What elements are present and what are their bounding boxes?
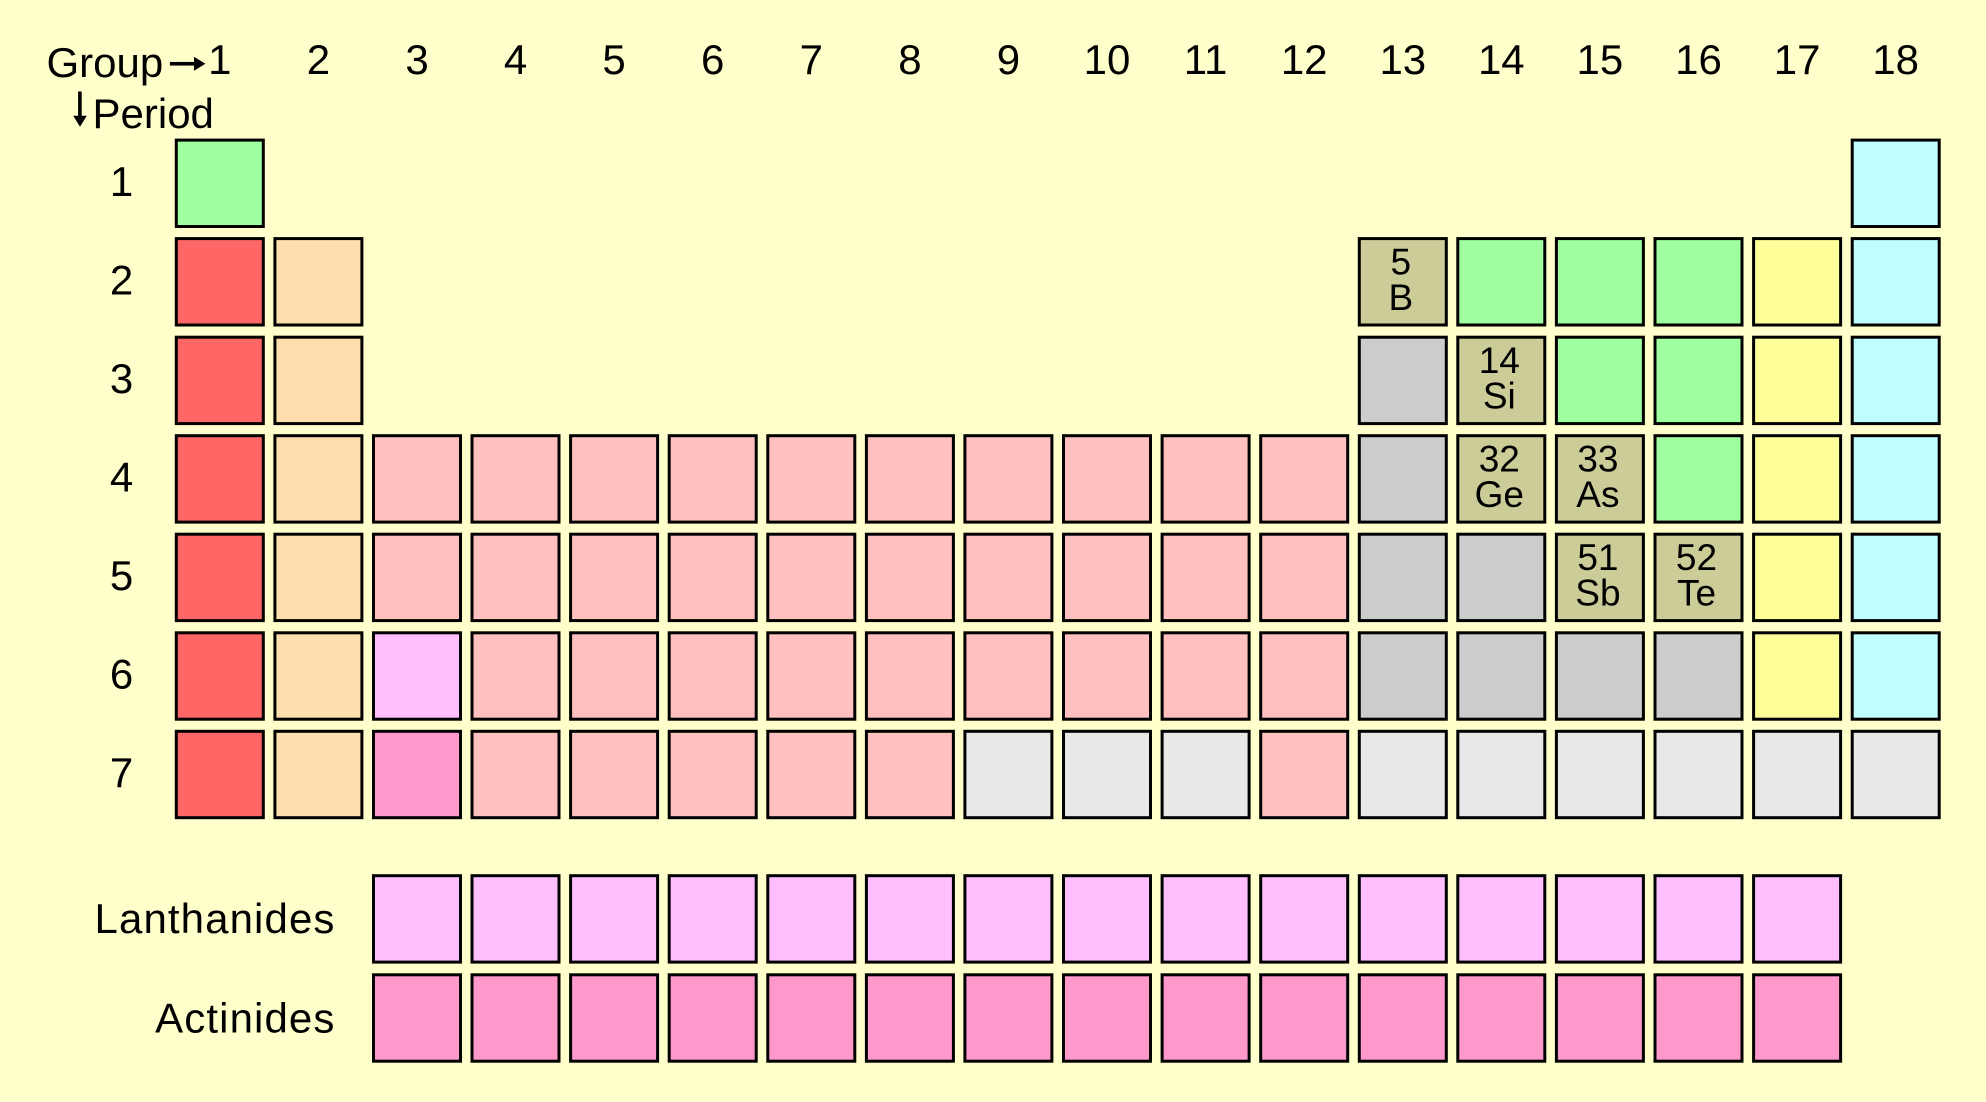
svg-text:Te: Te bbox=[1677, 573, 1716, 614]
svg-text:13: 13 bbox=[1379, 36, 1426, 83]
svg-text:As: As bbox=[1576, 474, 1619, 515]
svg-text:14: 14 bbox=[1478, 36, 1525, 83]
svg-text:15: 15 bbox=[1577, 36, 1624, 83]
svg-text:8: 8 bbox=[898, 36, 921, 83]
svg-text:7: 7 bbox=[800, 36, 823, 83]
svg-text:Period: Period bbox=[93, 90, 214, 137]
svg-text:16: 16 bbox=[1675, 36, 1722, 83]
svg-text:3: 3 bbox=[405, 36, 428, 83]
svg-text:Sb: Sb bbox=[1575, 573, 1620, 614]
svg-text:6: 6 bbox=[701, 36, 724, 83]
svg-text:5: 5 bbox=[602, 36, 625, 83]
svg-text:B: B bbox=[1388, 277, 1413, 318]
svg-text:Ge: Ge bbox=[1475, 474, 1524, 515]
svg-text:12: 12 bbox=[1281, 36, 1328, 83]
svg-text:9: 9 bbox=[997, 36, 1020, 83]
svg-text:3: 3 bbox=[110, 355, 133, 402]
svg-text:1: 1 bbox=[110, 158, 133, 205]
svg-text:2: 2 bbox=[307, 36, 330, 83]
svg-text:4: 4 bbox=[504, 36, 527, 83]
svg-text:7: 7 bbox=[110, 749, 133, 796]
svg-text:2: 2 bbox=[110, 256, 133, 303]
svg-text:4: 4 bbox=[110, 453, 133, 500]
svg-text:18: 18 bbox=[1872, 36, 1919, 83]
svg-text:Si: Si bbox=[1483, 376, 1516, 417]
svg-text:Group: Group bbox=[47, 39, 164, 86]
svg-text:6: 6 bbox=[110, 651, 133, 698]
svg-text:Actinides: Actinides bbox=[155, 995, 335, 1042]
svg-text:1: 1 bbox=[208, 36, 231, 83]
svg-text:10: 10 bbox=[1084, 36, 1131, 83]
svg-text:5: 5 bbox=[110, 552, 133, 599]
svg-text:11: 11 bbox=[1184, 36, 1228, 83]
svg-text:17: 17 bbox=[1774, 36, 1821, 83]
svg-text:Lanthanides: Lanthanides bbox=[95, 895, 336, 942]
